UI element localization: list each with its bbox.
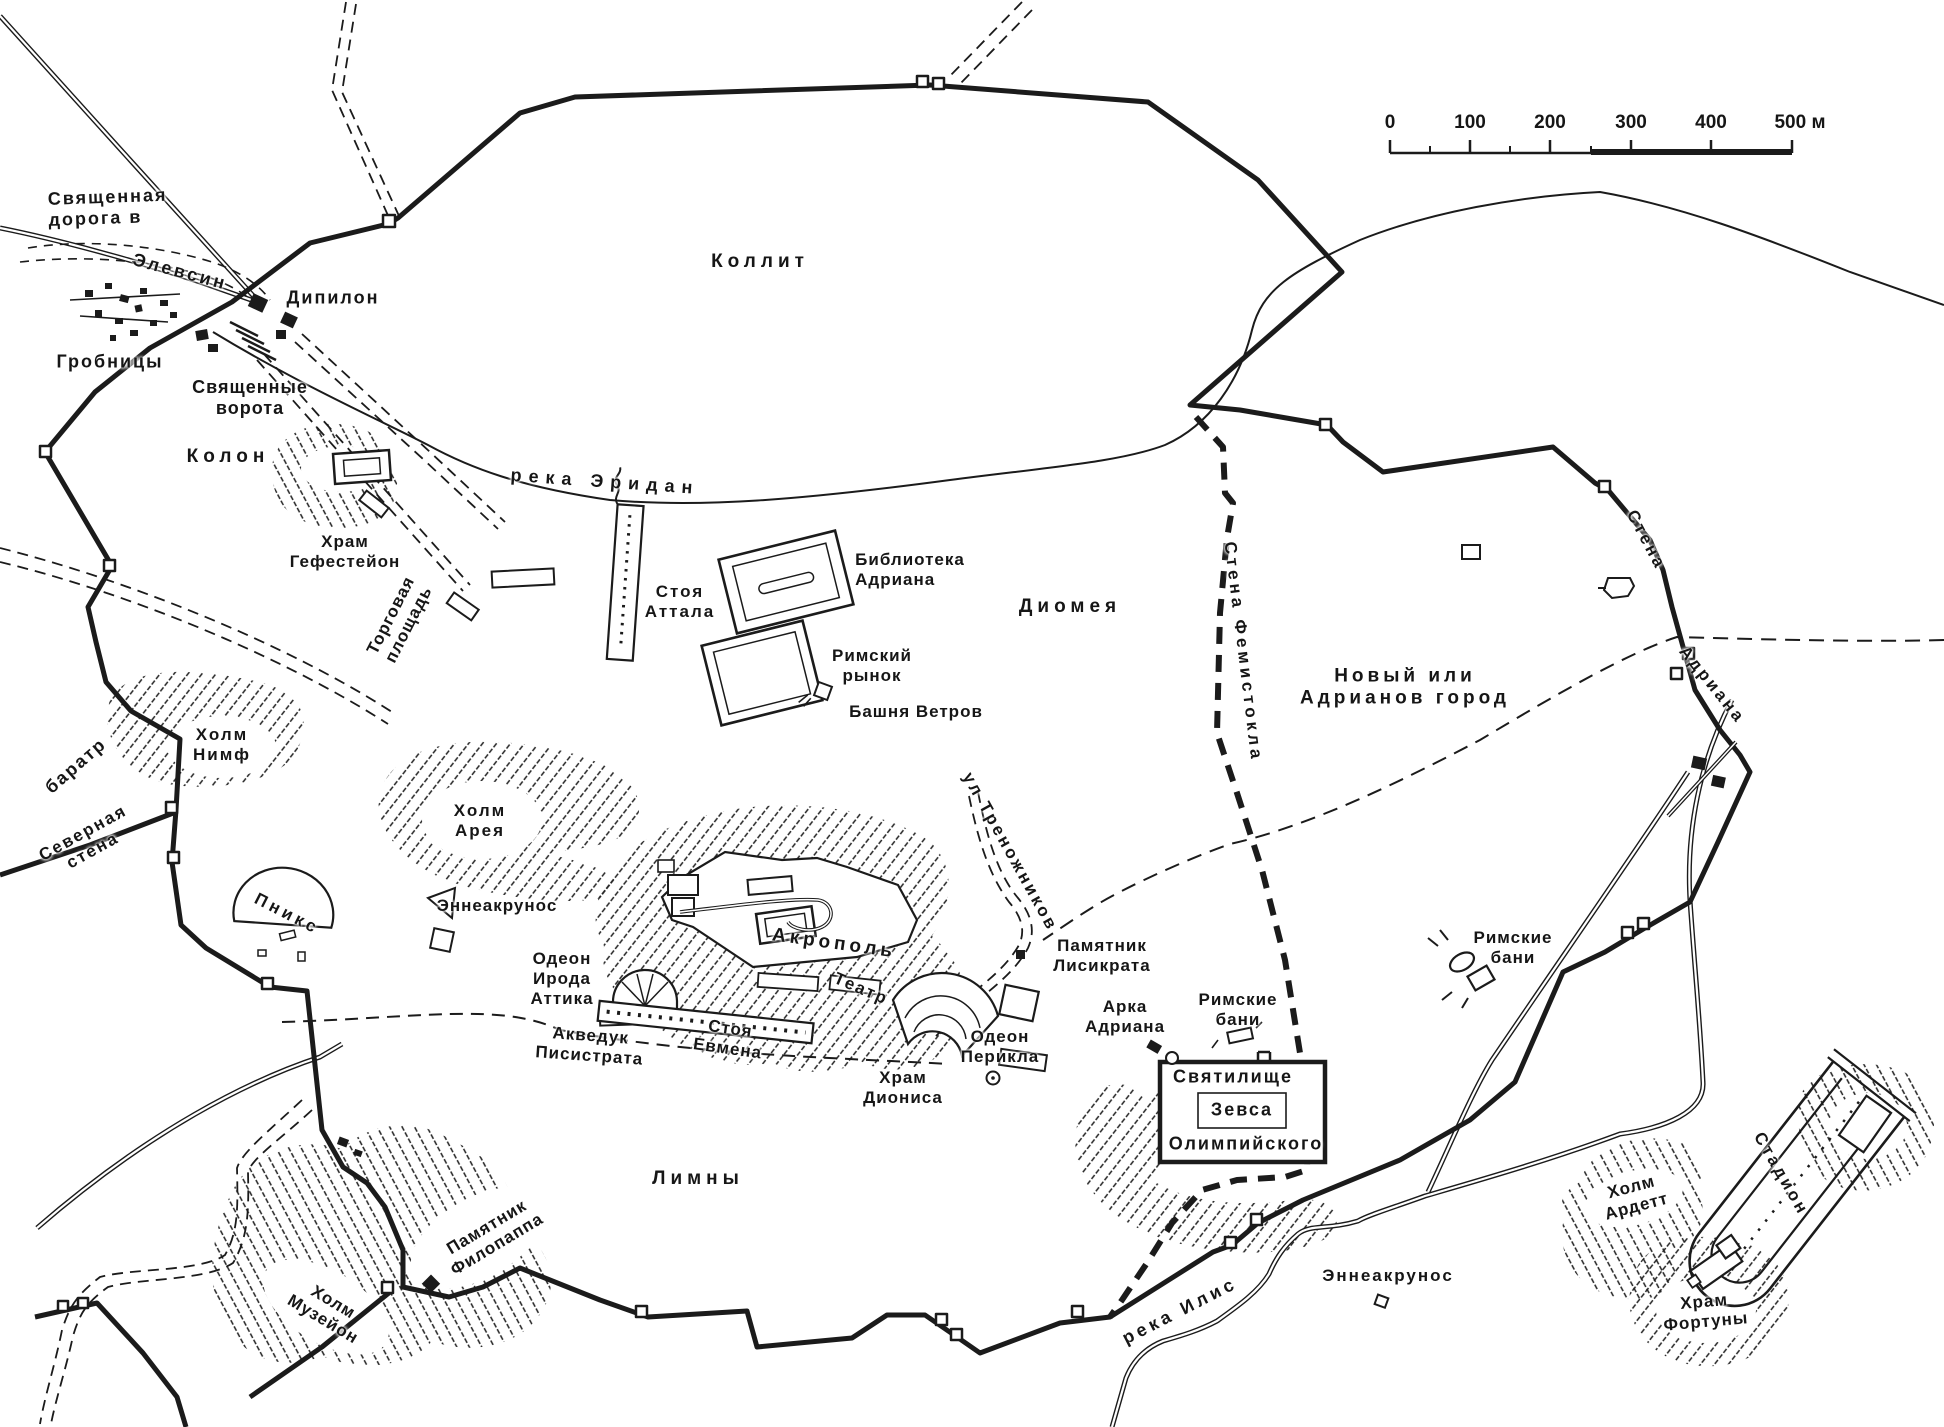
label-enneakrunos-south: Эннеакрунос [1322,1266,1454,1286]
label-new-city: Новый или Адрианов город [1300,666,1510,711]
label-tower-of-winds: Башня Ветров [849,702,983,722]
label-aqueduct: Акведук Писистрата [535,1022,646,1070]
label-kollit: Коллит [711,251,809,273]
hadrian-arch-mark [1146,1040,1162,1054]
odeon-pericles-building [999,985,1038,1021]
label-hadrian-arch: Арка Адриана [1085,997,1165,1037]
label-diomea: Диомея [1019,596,1121,618]
scale-tick-400: 400 [1695,112,1727,134]
label-hephaisteion: Храм Гефестейон [290,532,400,572]
stoa-attala-building [603,467,646,661]
label-sanctuary-line2: Зевса [1211,1099,1273,1120]
scale-tick-200: 200 [1534,112,1566,134]
label-sanctuary-line1: Святилище [1173,1066,1293,1087]
lysicrates-mark [1016,950,1025,959]
enneakrunos-south-mark [1375,1295,1389,1308]
east-small-building [1462,545,1480,559]
label-ares-hill: Холм Арея [454,801,506,841]
scale-bar [1390,140,1792,155]
roman-market-building [702,621,823,726]
scale-tick-100: 100 [1454,112,1486,134]
label-roman-baths-east: Римские бани [1473,928,1552,968]
label-sacred-road: Священная дорога в [47,185,168,232]
label-sanctuary-line3: Олимпийского [1169,1133,1324,1154]
label-odeon-herodes: Одеон Ирода Аттика [530,949,593,1009]
dipylon-gate-structures [195,293,298,360]
label-stoa-attala: Стоя Аттала [645,582,715,622]
label-hadrian-library: Библиотека Адриана [855,550,965,590]
label-odeon-pericles: Одеон Перикла [961,1027,1039,1067]
label-fortuna-temple: Храм Фортуны [1661,1288,1749,1335]
scale-tick-0: 0 [1385,112,1396,134]
label-sacred-gates: Священные ворота [192,377,308,419]
label-kolon: Колон [187,446,270,468]
label-nymph-hill: Холм Нимф [193,725,251,765]
scale-tick-500: 500 м [1774,112,1825,134]
label-limny: Лимны [652,1168,744,1190]
east-church-building [1598,578,1634,598]
hephaisteion-temple [333,450,391,484]
label-dionysus-temple: Храм Диониса [863,1068,943,1108]
ilis-bridge [1668,742,1736,816]
label-dipylon: Дипилон [287,287,380,308]
eridan-river [213,192,1944,503]
tombs-cluster [70,283,180,341]
scale-tick-300: 300 [1615,112,1647,134]
label-lysicrates: Памятник Лисикрата [1053,936,1150,976]
athens-ancient-map: Священная дорога в Элевсин Дипилон Гробн… [0,0,1944,1427]
label-enneakrunos-west: Эннеакрунос [437,896,558,916]
hadrian-library-building [719,531,854,634]
asclepieion-1 [758,973,819,991]
agora-stoa [492,568,555,587]
sw-long-wall [35,1303,186,1427]
label-tombs: Гробницы [56,351,163,372]
erechtheion [747,876,792,895]
label-roman-market: Римский рынок [832,646,912,686]
label-roman-baths-zeus: Римские бани [1198,990,1277,1030]
southeast-monuments [1016,545,1736,1162]
